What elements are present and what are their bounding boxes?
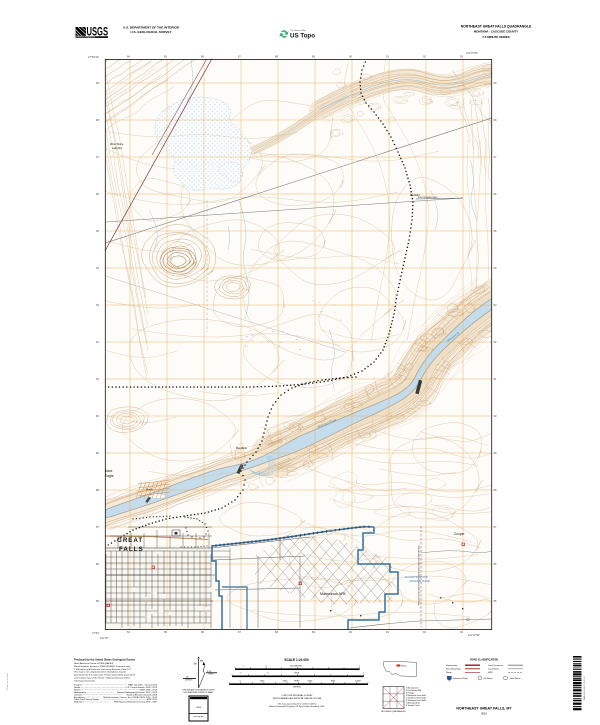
svg-text:State Route: State Route: [510, 677, 522, 680]
svg-text:ADJOINING QUADRANGLES: ADJOINING QUADRANGLES: [381, 710, 406, 713]
svg-text:47°45': 47°45': [92, 631, 100, 635]
svg-text:CONTOUR INTERVAL 20 FEET: CONTOUR INTERVAL 20 FEET: [281, 694, 313, 697]
svg-text:1 000-meter grid:Universal Tra: 1 000-meter grid:Universal Transverse Me…: [74, 668, 132, 671]
svg-text:DECLINATION AT CENTER OF SHEET: DECLINATION AT CENTER OF SHEET: [184, 691, 214, 694]
svg-text:This map was produced to confo: This map was produced to conform with th…: [278, 703, 318, 706]
svg-text:BNSF RR ABANDONED: BNSF RR ABANDONED: [418, 196, 438, 199]
svg-text:NORTHEAST GREAT FALLS QUADRANG: NORTHEAST GREAT FALLS QUADRANGLE: [461, 25, 532, 29]
svg-text:ISBN 978-0-607-XXXXX-X: ISBN 978-0-607-XXXXX-X: [584, 676, 586, 700]
svg-text:USGS: USGS: [196, 707, 202, 709]
svg-text:reservations may not be shown.: reservations may not be shown. Obtain pe…: [74, 677, 131, 680]
svg-text:10000: 10000: [355, 681, 361, 683]
svg-text:111°45': 111°45': [100, 636, 109, 640]
svg-text:MALMSTROM AFB: MALMSTROM AFB: [405, 575, 428, 579]
svg-text:Local Connector: Local Connector: [488, 664, 503, 667]
svg-text:Produced by the United States: Produced by the United States Geological…: [74, 658, 136, 662]
svg-text:FALLS: FALLS: [119, 546, 144, 553]
svg-text:(FEDERAL BASE): (FEDERAL BASE): [409, 579, 430, 583]
svg-text:MALMSTROM AIR FORCE BASE MILIT: MALMSTROM AIR FORCE BASE MILITARY RESERV…: [418, 545, 421, 605]
svg-text:U.S. GEOLOGICAL SURVEY: U.S. GEOLOGICAL SURVEY: [130, 30, 172, 34]
svg-text:Lake Rd: Lake Rd: [112, 146, 122, 150]
svg-text:0°23': 0°23': [207, 671, 212, 673]
svg-text:Malmstrom AFB: Malmstrom AFB: [320, 592, 346, 596]
svg-text:Rainbow: Rainbow: [236, 446, 248, 450]
svg-text:SCALE 1:24 000: SCALE 1:24 000: [284, 658, 308, 662]
svg-text:FWS National Wetlands Inventor: FWS National Wetlands Inventory, 1982 - …: [114, 701, 158, 704]
svg-text:249 MILS: 249 MILS: [185, 680, 193, 682]
svg-text:7.5-MINUTE SERIES: 7.5-MINUTE SERIES: [482, 35, 510, 39]
svg-text:NORTH AMERICAN VERTICAL DATUM: NORTH AMERICAN VERTICAL DATUM OF 1988: [273, 697, 322, 700]
svg-text:METERS: METERS: [293, 687, 301, 689]
svg-text:National Geospatial Program US: National Geospatial Program US Topo Prod…: [269, 705, 325, 708]
svg-text:World Geodetic System of 1984: World Geodetic System of 1984 (WGS84). P…: [74, 665, 131, 668]
svg-text:MONTANA - CASCADE COUNTY: MONTANA - CASCADE COUNTY: [474, 30, 518, 34]
svg-text:This map is not a legal docume: This map is not a legal document. Bounda…: [74, 671, 127, 674]
svg-text:Secondary Hwy: Secondary Hwy: [446, 668, 462, 671]
svg-text:Smelter: Smelter: [146, 488, 154, 491]
svg-text:MN: MN: [200, 661, 204, 663]
svg-text:NORTHEAST GREAT FALLS, MT: NORTHEAST GREAT FALLS, MT: [456, 707, 512, 711]
svg-text:Ramp: Ramp: [446, 672, 452, 674]
svg-text:Cooper: Cooper: [454, 532, 465, 536]
svg-text:Local Road: Local Road: [488, 669, 499, 671]
svg-text:North American Datum of 1983 (: North American Datum of 1983 (NAD83): [74, 662, 113, 665]
svg-text:generalized for this map scale: generalized for this map scale. Private …: [74, 674, 136, 677]
svg-text:FEET: FEET: [294, 681, 300, 683]
svg-text:47°52'30": 47°52'30": [88, 55, 99, 59]
svg-text:entering private lands.: entering private lands.: [74, 679, 96, 682]
svg-text:KILOMETER: KILOMETER: [290, 666, 302, 668]
svg-text:111°37'30": 111°37'30": [466, 51, 478, 55]
svg-text:Helena: Helena: [401, 666, 406, 668]
svg-text:7 MILS: 7 MILS: [208, 674, 214, 676]
svg-text:Expressway: Expressway: [446, 664, 458, 667]
svg-text:US Topo: US Topo: [290, 33, 315, 40]
svg-text:MILE: MILE: [295, 673, 300, 675]
svg-text:Printed on demand: Printed on demand: [6, 673, 9, 690]
svg-text:Interstate Route: Interstate Route: [453, 677, 469, 680]
svg-text:US Route: US Route: [484, 677, 494, 680]
svg-text:4WD: 4WD: [488, 672, 493, 674]
svg-text:Eagle: Eagle: [105, 474, 114, 478]
svg-text:111°37'30": 111°37'30": [468, 633, 480, 637]
svg-text:ROAD CLASSIFICATION: ROAD CLASSIFICATION: [470, 659, 498, 662]
svg-text:8 Tenmile Creek: 8 Tenmile Creek: [406, 704, 420, 707]
svg-text:14°: 14°: [186, 677, 189, 679]
svg-text:2014: 2014: [481, 712, 487, 716]
svg-text:West Shore: West Shore: [110, 142, 124, 146]
svg-text:GREAT: GREAT: [117, 537, 143, 544]
svg-text:Wetlands: Wetlands: [74, 701, 83, 704]
